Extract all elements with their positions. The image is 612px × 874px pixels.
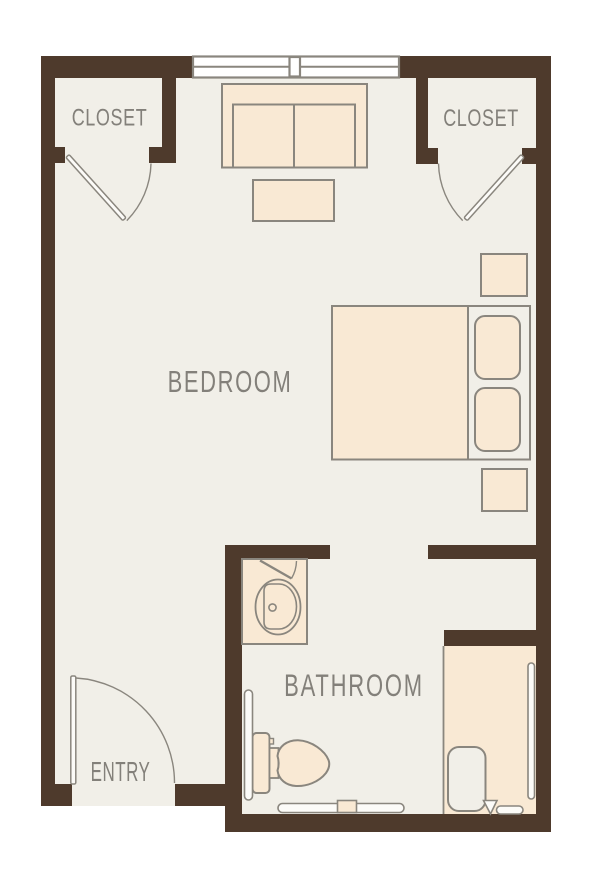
svg-text:CLOSET: CLOSET — [443, 105, 519, 132]
svg-text:BEDROOM: BEDROOM — [168, 364, 293, 398]
svg-text:CLOSET: CLOSET — [72, 104, 148, 131]
svg-text:BATHROOM: BATHROOM — [284, 668, 424, 703]
svg-text:ENTRY: ENTRY — [91, 756, 151, 787]
